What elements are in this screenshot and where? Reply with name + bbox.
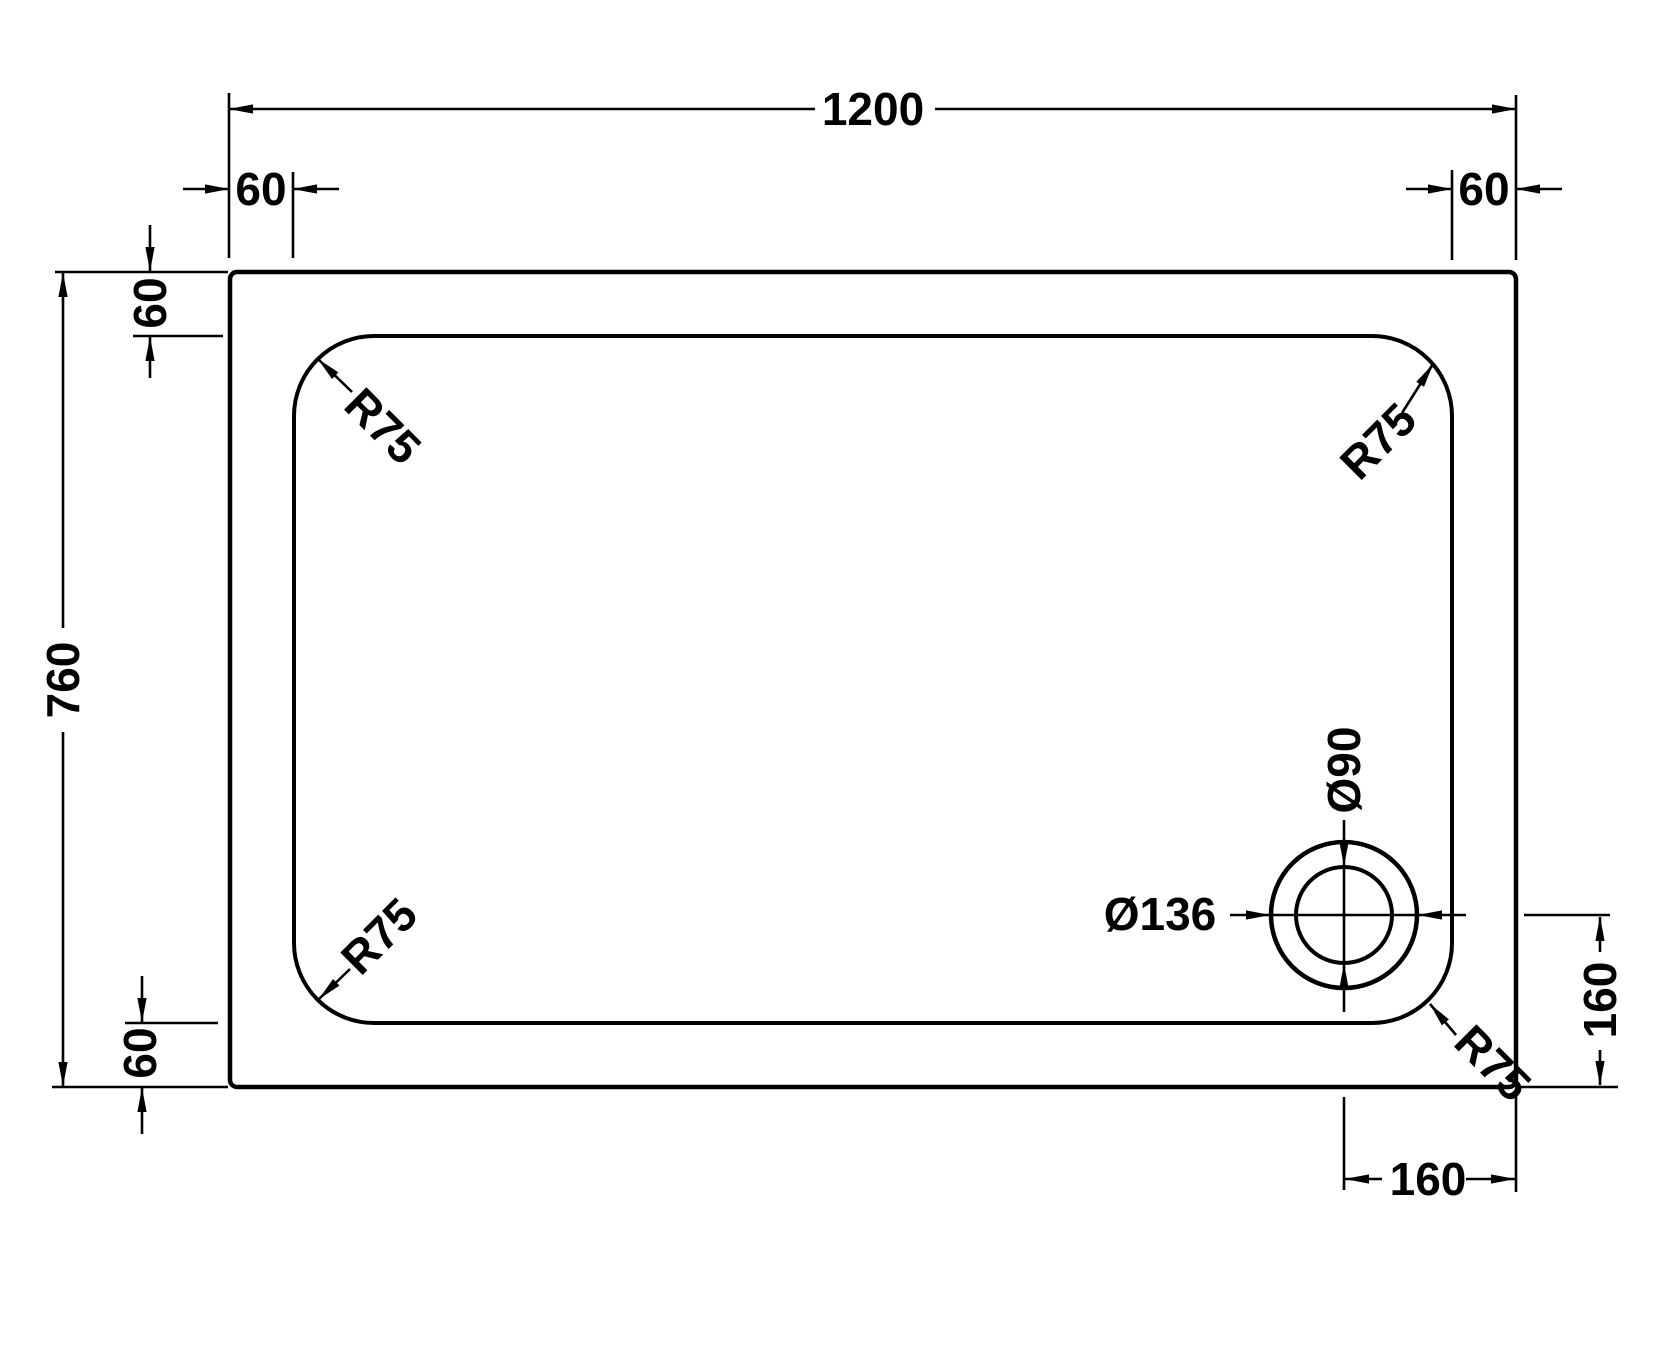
dim-label-top-right-offset: 60 <box>1458 163 1509 215</box>
technical-drawing-page: 1200 760 60 60 60 60 Ø90 Ø136 <box>0 0 1653 1354</box>
dim-label-overall-height: 760 <box>37 642 89 719</box>
dim-label-left-top-offset: 60 <box>124 277 176 328</box>
dim-label-drain-outer-diameter: Ø136 <box>1104 888 1217 940</box>
dim-label-drain-inner-diameter: Ø90 <box>1318 727 1370 814</box>
dim-label-drain-offset-bottom: 160 <box>1574 962 1626 1039</box>
dim-label-drain-offset-right: 160 <box>1390 1153 1467 1205</box>
shower-tray-drawing: 1200 760 60 60 60 60 Ø90 Ø136 <box>0 0 1653 1354</box>
dim-label-top-left-offset: 60 <box>235 163 286 215</box>
dim-label-overall-width: 1200 <box>822 83 924 135</box>
dim-label-left-bottom-offset: 60 <box>114 1027 166 1078</box>
